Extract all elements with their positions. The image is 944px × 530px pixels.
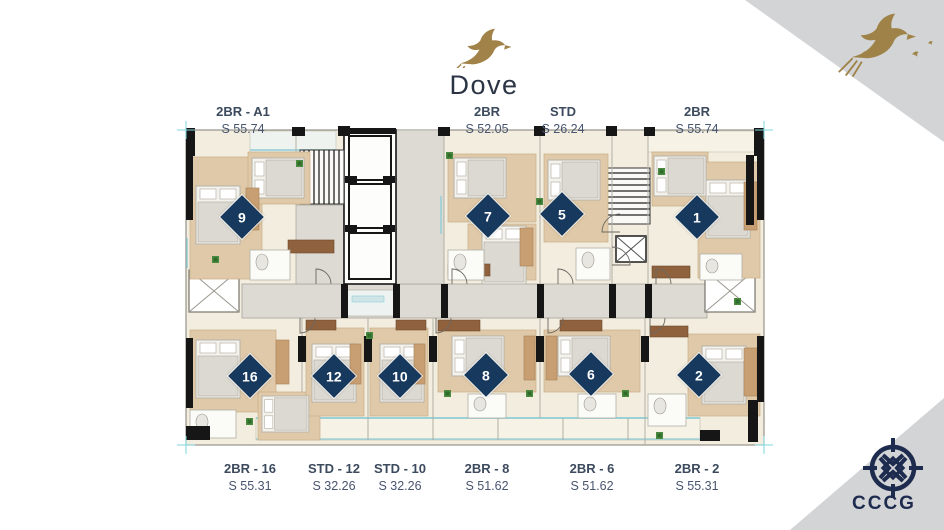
unit-area: S 55.74 [216, 122, 270, 138]
unit-area: S 32.26 [308, 479, 360, 495]
top-unit-label: STDS 26.24 [541, 104, 584, 138]
bottom-unit-label: 2BR - 16S 55.31 [224, 461, 276, 495]
unit-type: 2BR - 2 [675, 461, 720, 477]
unit-type: 2BR - 16 [224, 461, 276, 477]
bottom-unit-label: STD - 10S 32.26 [374, 461, 426, 495]
bottom-unit-label: STD - 12S 32.26 [308, 461, 360, 495]
unit-number: 1 [693, 209, 701, 225]
unit-area: S 32.26 [374, 479, 426, 495]
cccg-logo-text: CCCG [838, 493, 930, 515]
bottom-unit-label: 2BR - 2S 55.31 [675, 461, 720, 495]
unit-number: 16 [242, 368, 258, 384]
dove-logo: Dove [414, 24, 554, 101]
bottom-unit-label: 2BR - 8S 51.62 [465, 461, 510, 495]
dove-icon [455, 24, 513, 68]
unit-number: 12 [326, 368, 342, 384]
unit-number: 9 [238, 209, 246, 225]
top-unit-label: 2BRS 55.74 [675, 104, 718, 138]
logo-text: Dove [414, 70, 554, 101]
unit-type: 2BR - 6 [570, 461, 615, 477]
unit-type: 2BR [675, 104, 718, 120]
unit-area: S 51.62 [465, 479, 510, 495]
unit-number: 10 [392, 368, 408, 384]
unit-number: 7 [484, 208, 492, 224]
slide: CCCG Dove 2BR - A1S 55.742BRS 52.05STDS … [0, 0, 944, 530]
unit-type: STD [541, 104, 584, 120]
unit-type: 2BR - A1 [216, 104, 270, 120]
unit-number: 8 [482, 367, 490, 383]
unit-area: S 52.05 [465, 122, 508, 138]
bottom-unit-label: 2BR - 6S 51.62 [570, 461, 615, 495]
unit-type: STD - 12 [308, 461, 360, 477]
unit-number: 5 [558, 206, 566, 222]
unit-area: S 55.31 [675, 479, 720, 495]
unit-area: S 55.31 [224, 479, 276, 495]
unit-area: S 51.62 [570, 479, 615, 495]
unit-type: 2BR [465, 104, 508, 120]
top-unit-label: 2BR - A1S 55.74 [216, 104, 270, 138]
unit-type: STD - 10 [374, 461, 426, 477]
unit-type: 2BR - 8 [465, 461, 510, 477]
unit-number: 2 [695, 367, 703, 383]
unit-number: 6 [587, 366, 595, 382]
unit-area: S 26.24 [541, 122, 584, 138]
top-unit-label: 2BRS 52.05 [465, 104, 508, 138]
unit-area: S 55.74 [675, 122, 718, 138]
